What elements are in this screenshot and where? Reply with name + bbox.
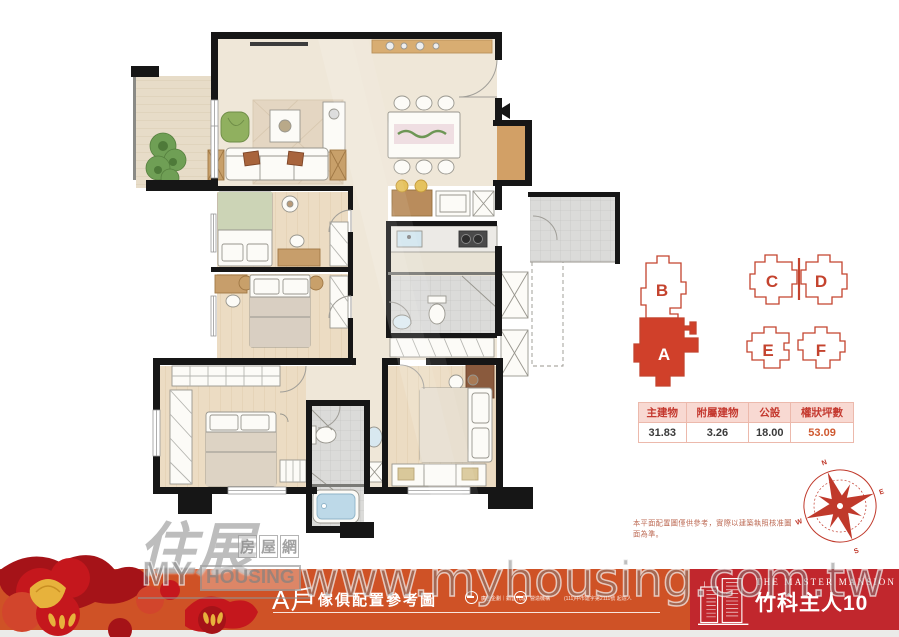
- banner-subtitle: 傢俱配置參考圖: [318, 589, 437, 610]
- service-platforms: [501, 262, 615, 376]
- area-table-value: 3.26: [686, 423, 749, 443]
- brand-panel: THE MASTER MANSION 竹科主人10: [690, 569, 899, 630]
- unit-a-label: A: [658, 345, 670, 364]
- floor-plan: B A C D E F: [0, 0, 899, 637]
- developer-logo-icon: [465, 591, 478, 604]
- unit-d-label: D: [815, 272, 827, 291]
- brand-name-en: THE MASTER MANSION: [756, 577, 896, 587]
- area-table: 主建物 附屬建物 公設 權狀坪數 31.83 3.26 18.00 53.09: [638, 402, 854, 443]
- floorplan-poster: B A C D E F: [0, 0, 899, 637]
- builder-logo-icon: [514, 591, 527, 604]
- brand-name-zh: 竹科主人10: [755, 587, 868, 617]
- building-icon: [698, 574, 754, 628]
- bottom-strip: [0, 630, 899, 637]
- compass-north-label: N: [821, 459, 828, 467]
- area-table-header: 附屬建物: [686, 403, 749, 423]
- unit-b-label: B: [656, 281, 668, 300]
- unit-e-label: E: [762, 341, 773, 360]
- area-table-header: 權狀坪數: [791, 403, 854, 423]
- area-table-header: 公設: [749, 403, 791, 423]
- unit-c-label: C: [766, 272, 778, 291]
- builder-logo-label: 營造機構: [530, 594, 550, 602]
- compass-icon: N E S W: [779, 444, 899, 571]
- compass-east-label: E: [878, 488, 885, 496]
- compass-south-label: S: [853, 547, 860, 555]
- area-table-value-total: 53.09: [791, 423, 854, 443]
- area-table-value: 31.83: [639, 423, 687, 443]
- unit-key-diagram: B A C D E F: [634, 255, 847, 386]
- area-table-value: 18.00: [749, 423, 791, 443]
- banner-divider-line: [273, 612, 660, 613]
- area-table-header: 主建物: [639, 403, 687, 423]
- license-fine-print: (111)中市建字第2111號 起造人: [564, 594, 632, 602]
- disclaimer-text: 本平面配置圖僅供參考，實際以建築執照核准圖面為準。: [633, 517, 799, 539]
- unit-f-label: F: [816, 341, 826, 360]
